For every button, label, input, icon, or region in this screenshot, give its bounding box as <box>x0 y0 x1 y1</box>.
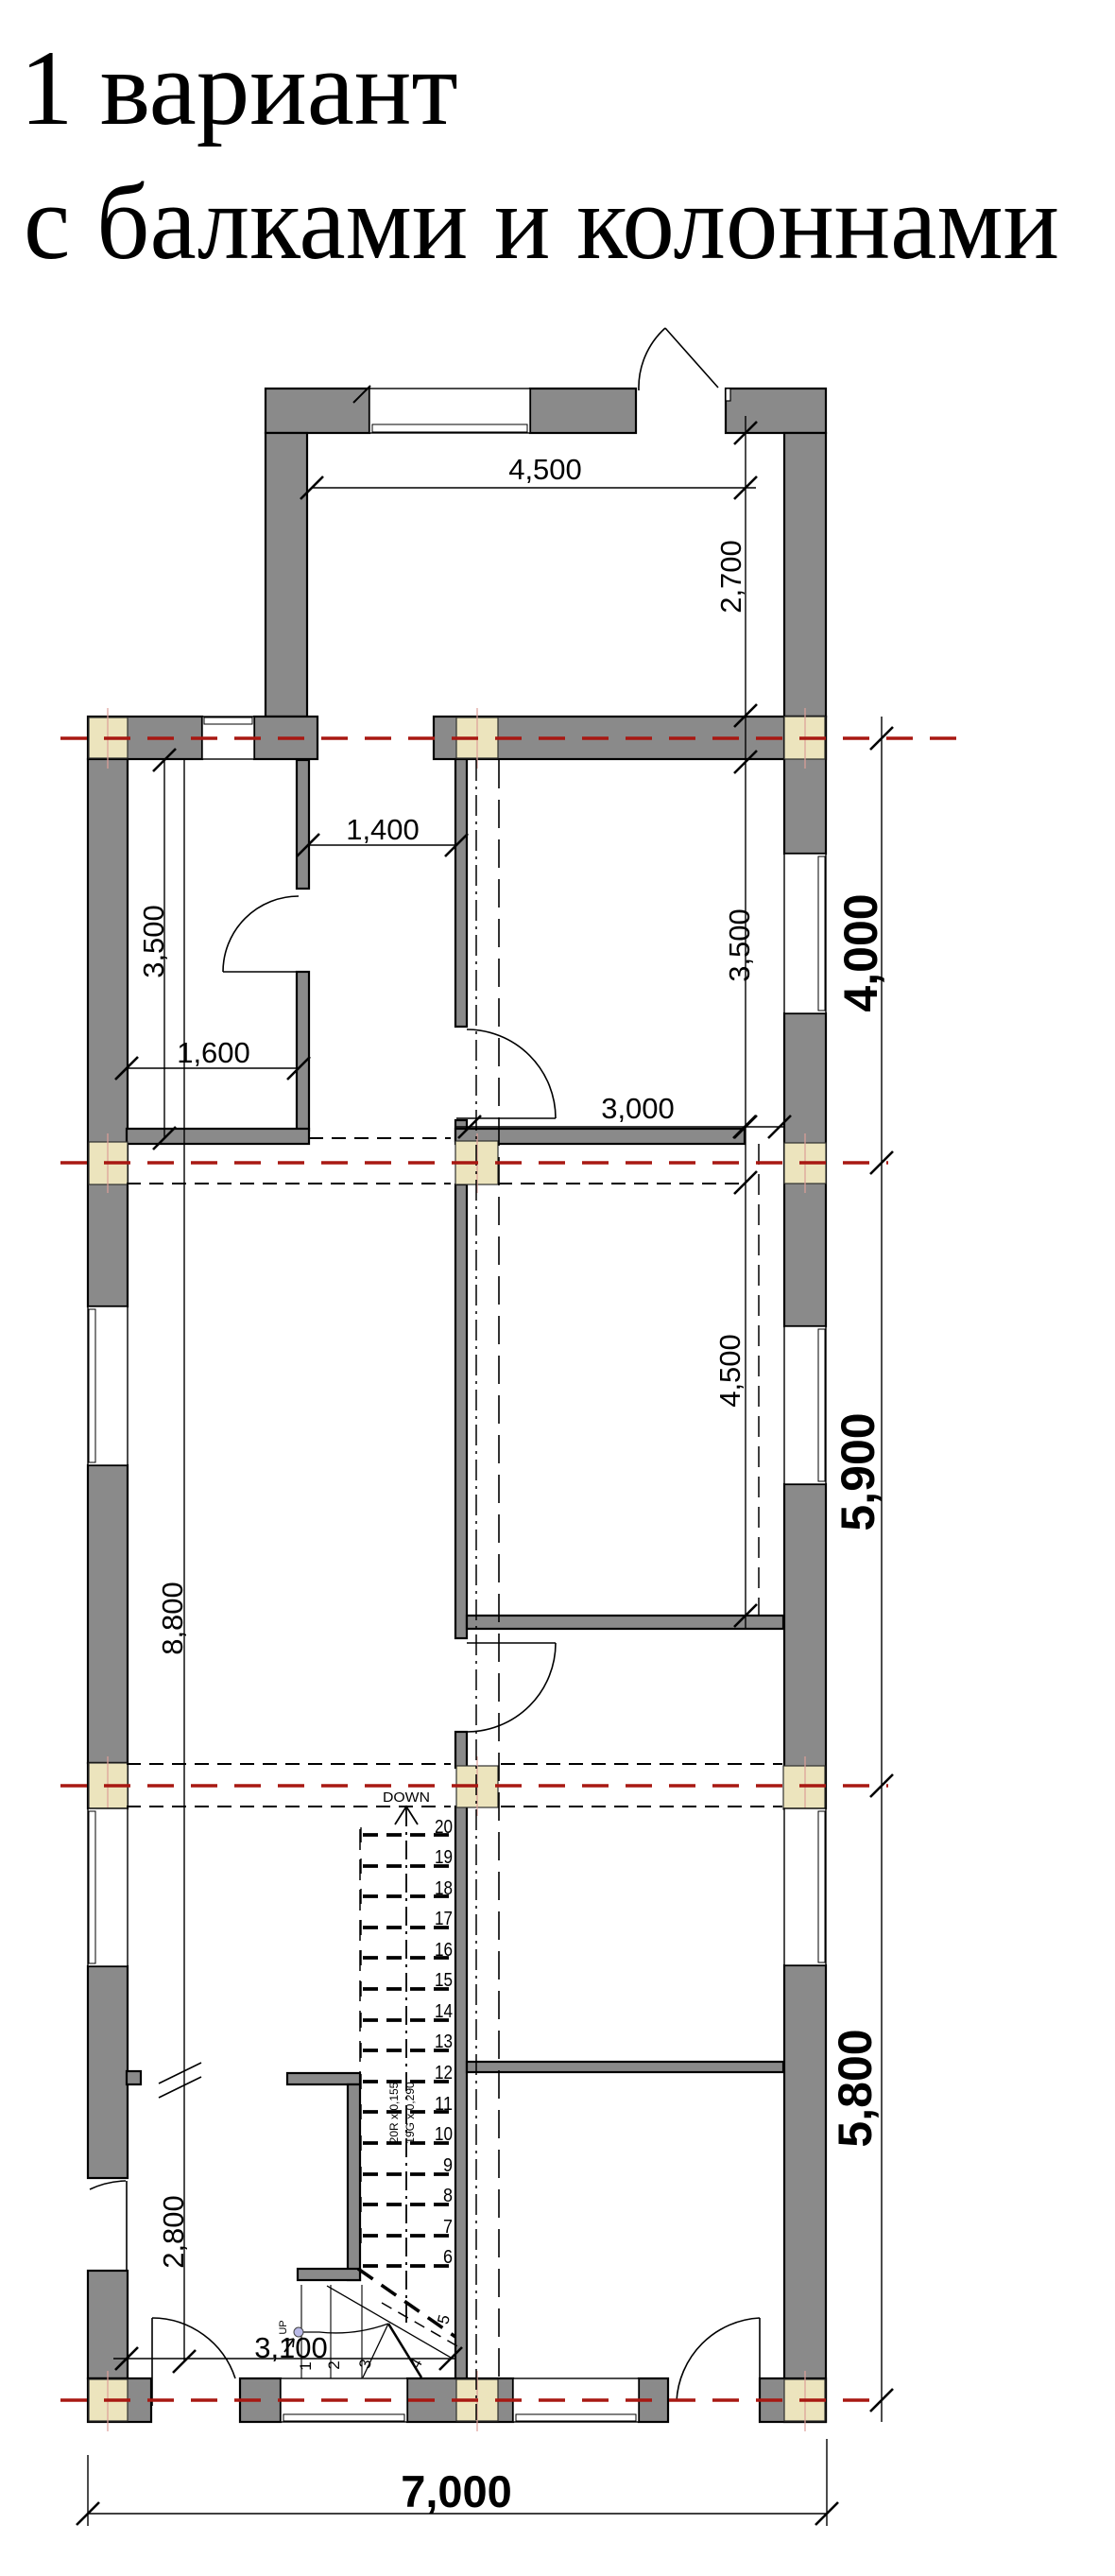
svg-text:1,400: 1,400 <box>346 813 420 846</box>
svg-text:20: 20 <box>435 1817 453 1838</box>
svg-text:14: 14 <box>435 2001 453 2022</box>
svg-text:16: 16 <box>435 1940 453 1961</box>
svg-text:3,500: 3,500 <box>137 905 170 978</box>
svg-text:7: 7 <box>443 2217 453 2238</box>
svg-text:5,800: 5,800 <box>829 2029 882 2147</box>
svg-text:18: 18 <box>435 1878 453 1899</box>
svg-text:3,500: 3,500 <box>723 908 756 982</box>
svg-text:12: 12 <box>435 2063 453 2083</box>
svg-text:DOWN: DOWN <box>383 1789 430 1806</box>
svg-text:1 вариант: 1 вариант <box>20 29 458 147</box>
svg-text:19: 19 <box>435 1847 453 1868</box>
svg-text:4,500: 4,500 <box>713 1334 746 1408</box>
svg-text:4,500: 4,500 <box>508 453 582 486</box>
svg-text:13: 13 <box>435 2031 453 2052</box>
svg-text:8: 8 <box>443 2186 453 2206</box>
svg-text:7,000: 7,000 <box>401 2466 512 2516</box>
svg-text:5,900: 5,900 <box>832 1412 884 1530</box>
svg-text:15: 15 <box>435 1970 453 1991</box>
svg-text:20R x 0,155: 20R x 0,155 <box>387 2082 401 2143</box>
svg-text:10: 10 <box>435 2124 453 2145</box>
svg-text:2,700: 2,700 <box>714 540 747 614</box>
svg-text:17: 17 <box>435 1909 453 1929</box>
svg-text:8,800: 8,800 <box>156 1582 189 1655</box>
svg-text:19G x 0,290: 19G x 0,290 <box>403 2082 417 2144</box>
svg-text:9: 9 <box>443 2155 453 2176</box>
svg-text:3,100: 3,100 <box>254 2331 328 2364</box>
svg-text:11: 11 <box>435 2094 453 2115</box>
svg-text:6: 6 <box>443 2247 453 2268</box>
svg-text:2: 2 <box>325 2360 343 2369</box>
svg-text:2,800: 2,800 <box>157 2195 190 2269</box>
svg-text:3,000: 3,000 <box>601 1092 675 1125</box>
svg-text:с балками и колоннами: с балками и колоннами <box>24 164 1059 282</box>
svg-text:4,000: 4,000 <box>834 893 887 1011</box>
svg-text:1,600: 1,600 <box>177 1036 250 1069</box>
